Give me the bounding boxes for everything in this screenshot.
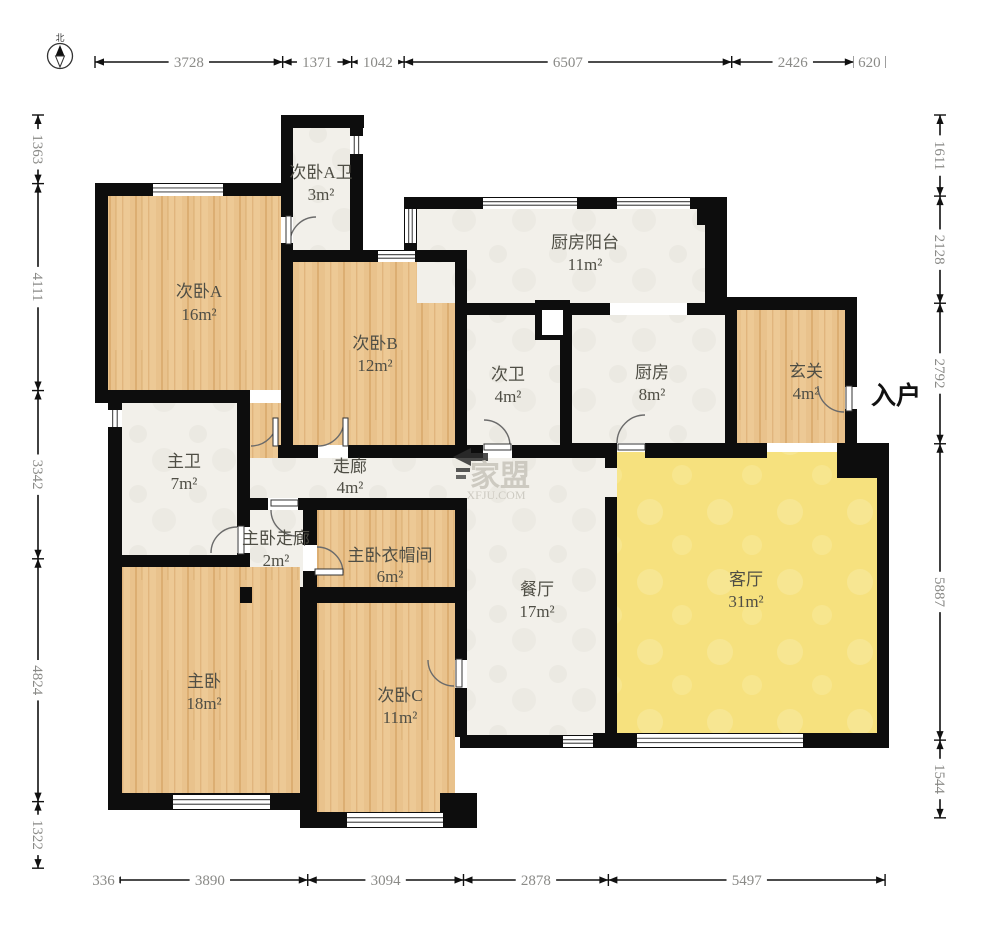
room-master-bath-area: 7m² bbox=[171, 474, 198, 493]
wall bbox=[300, 587, 467, 603]
wall bbox=[108, 555, 250, 567]
wall bbox=[512, 445, 572, 458]
wall bbox=[440, 793, 477, 828]
room-bedroomC-label: 次卧C bbox=[377, 686, 422, 705]
wall bbox=[455, 303, 610, 315]
room-bedroomA-bath-area: 3m² bbox=[308, 185, 335, 204]
compass-north-label: 北 bbox=[55, 33, 64, 43]
bedroomB-door-leaf bbox=[343, 418, 348, 446]
room-bedroomC-area: 11m² bbox=[383, 708, 418, 727]
master-corridor-door-leaf bbox=[271, 500, 298, 506]
entrance-door-leaf bbox=[846, 386, 852, 411]
wall bbox=[350, 115, 363, 253]
dim-label: 2426 bbox=[778, 55, 809, 71]
window bbox=[350, 136, 363, 154]
room-master-bath-label: 主卫 bbox=[167, 452, 201, 471]
room-living-label: 客厅 bbox=[729, 570, 763, 589]
room-bedroomA-area: 16m² bbox=[181, 305, 216, 324]
room-corridor-label: 走廊 bbox=[333, 457, 367, 476]
room-master-closet-label: 主卧衣帽间 bbox=[348, 546, 433, 565]
window bbox=[563, 736, 593, 747]
dim-label: 4824 bbox=[29, 665, 45, 696]
dim-label: 1611 bbox=[931, 141, 947, 170]
watermark-logo-bar bbox=[456, 475, 466, 479]
dim-label: 2128 bbox=[931, 235, 947, 265]
window bbox=[378, 251, 415, 262]
floorplan-page: 家盟XFJU.COM次卧A卫3m²次卧A16m²次卧B12m²厨房阳台11m²次… bbox=[0, 0, 984, 943]
room-bedroomA-label: 次卧A bbox=[176, 282, 223, 301]
room-bath2-area: 4m² bbox=[495, 387, 522, 406]
window bbox=[617, 198, 690, 209]
wall bbox=[283, 250, 467, 262]
wall bbox=[725, 303, 737, 455]
dim-label: 3342 bbox=[29, 460, 45, 490]
room-master-corridor-label: 主卧走廊 bbox=[242, 529, 310, 548]
window bbox=[483, 198, 577, 209]
room-corridor-floor bbox=[248, 458, 605, 498]
wall bbox=[645, 443, 767, 458]
window bbox=[153, 184, 223, 196]
bath2-door-leaf bbox=[484, 444, 511, 450]
room-kitchen-balcony-area: 11m² bbox=[568, 255, 603, 274]
room-bedroomA-bath-label: 次卧A卫 bbox=[289, 163, 352, 182]
room-dining-area: 17m² bbox=[519, 602, 554, 621]
room-kitchen-label: 厨房 bbox=[635, 363, 669, 382]
bedroomC-door-leaf bbox=[456, 659, 462, 687]
dim-label: 2878 bbox=[521, 873, 551, 889]
wall bbox=[697, 197, 727, 225]
room-master-closet-area: 6m² bbox=[377, 567, 404, 586]
dim-label: 1042 bbox=[363, 55, 393, 71]
dim-label: 620 bbox=[858, 55, 881, 71]
dim-label: 2792 bbox=[931, 358, 947, 388]
wall bbox=[281, 243, 293, 447]
wall bbox=[845, 297, 857, 387]
window bbox=[637, 734, 803, 747]
wall bbox=[240, 587, 252, 603]
room-bedroomB-area: 12m² bbox=[357, 356, 392, 375]
dim-label: 3890 bbox=[195, 873, 225, 889]
wall bbox=[705, 222, 727, 310]
dim-label: 1363 bbox=[29, 134, 45, 164]
wall bbox=[605, 443, 617, 468]
wall bbox=[95, 183, 108, 403]
wall bbox=[687, 303, 727, 315]
window bbox=[347, 813, 443, 827]
room-kitchen-area: 8m² bbox=[639, 385, 666, 404]
room-bath2-label: 次卫 bbox=[491, 365, 525, 384]
dim-label: 1322 bbox=[29, 820, 45, 850]
dim-label: 1544 bbox=[931, 764, 947, 795]
watermark-logo-bar bbox=[456, 468, 470, 472]
bedroomA-bath-door-leaf bbox=[286, 216, 291, 244]
wall bbox=[298, 498, 460, 510]
room-foyer-label: 玄关 bbox=[789, 362, 823, 381]
dim-label: 5497 bbox=[732, 873, 763, 889]
corridor-opening bbox=[605, 468, 617, 497]
dim-label: 6507 bbox=[553, 55, 584, 71]
wall bbox=[95, 390, 248, 403]
kitchen-door-leaf bbox=[618, 444, 645, 450]
wall bbox=[278, 445, 318, 458]
wall bbox=[108, 555, 122, 810]
room-master-corridor-area: 2m² bbox=[263, 551, 290, 570]
wall bbox=[248, 498, 268, 510]
watermark-site: XFJU.COM bbox=[466, 488, 525, 502]
window bbox=[173, 795, 270, 809]
floorplan-svg: 家盟XFJU.COM次卧A卫3m²次卧A16m²次卧B12m²厨房阳台11m²次… bbox=[0, 0, 984, 943]
window bbox=[108, 410, 122, 427]
dim-label: 5887 bbox=[931, 577, 947, 608]
room-foyer-area: 4m² bbox=[793, 384, 820, 403]
dim-label: 3094 bbox=[371, 873, 402, 889]
dim-label: 4111 bbox=[29, 273, 45, 302]
dim-label: 1371 bbox=[302, 55, 332, 71]
wall bbox=[455, 250, 467, 458]
master-closet-door-leaf bbox=[315, 569, 343, 575]
dim-label: 3728 bbox=[174, 55, 204, 71]
bedroomA-door-leaf bbox=[273, 418, 278, 446]
entrance-label: 入户 bbox=[871, 381, 921, 410]
room-master-bedroom-label: 主卧 bbox=[187, 672, 221, 691]
flue-inner bbox=[542, 310, 563, 335]
room-master-bedroom-area: 18m² bbox=[186, 694, 221, 713]
wall bbox=[455, 688, 467, 737]
room-dining-label: 餐厅 bbox=[520, 580, 554, 599]
room-corridor-area: 4m² bbox=[337, 478, 364, 497]
window bbox=[405, 209, 416, 243]
wall bbox=[877, 443, 889, 748]
wall bbox=[605, 497, 617, 737]
dim-label: 336 bbox=[92, 873, 115, 889]
wall bbox=[300, 587, 317, 828]
room-living-area: 31m² bbox=[728, 592, 763, 611]
wall bbox=[727, 297, 857, 310]
room-bedroomB-label: 次卧B bbox=[352, 334, 397, 353]
room-kitchen-balcony-label: 厨房阳台 bbox=[551, 233, 619, 252]
wall bbox=[455, 498, 467, 660]
